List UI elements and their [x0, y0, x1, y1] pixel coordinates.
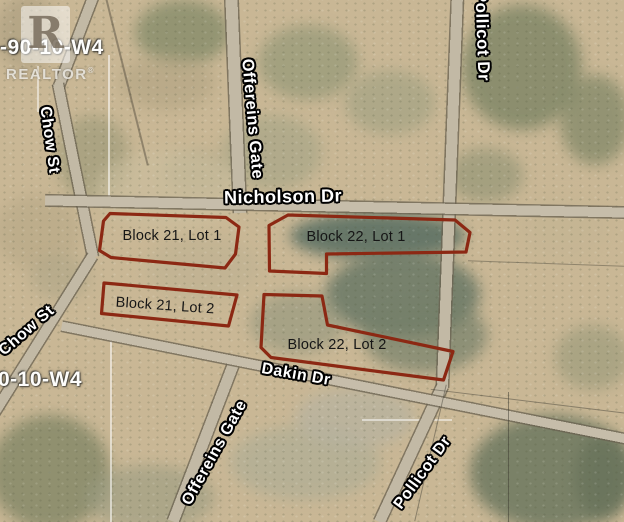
- realtor-brand-word: REALTOR: [6, 66, 88, 83]
- realtor-logo: R: [21, 6, 70, 63]
- realtor-brand-text: REALTOR®: [6, 66, 95, 83]
- township-label-bottom-left: 0-10-W4: [0, 368, 82, 392]
- lot-label-block22-lot1: Block 22, Lot 1: [307, 229, 406, 245]
- street-label-pollicot-dr-top: Pollicot Dr: [470, 0, 493, 82]
- street-label-nicholson-dr: Nicholson Dr: [224, 185, 342, 208]
- aerial-map-canvas: Chow St Chow St Offereins Gate Offereins…: [0, 0, 624, 522]
- realtor-logo-letter: R: [27, 12, 64, 56]
- lot-label-block21-lot1: Block 21, Lot 1: [123, 228, 222, 244]
- registered-mark: ®: [88, 66, 95, 75]
- lot-label-block22-lot2: Block 22, Lot 2: [288, 337, 387, 353]
